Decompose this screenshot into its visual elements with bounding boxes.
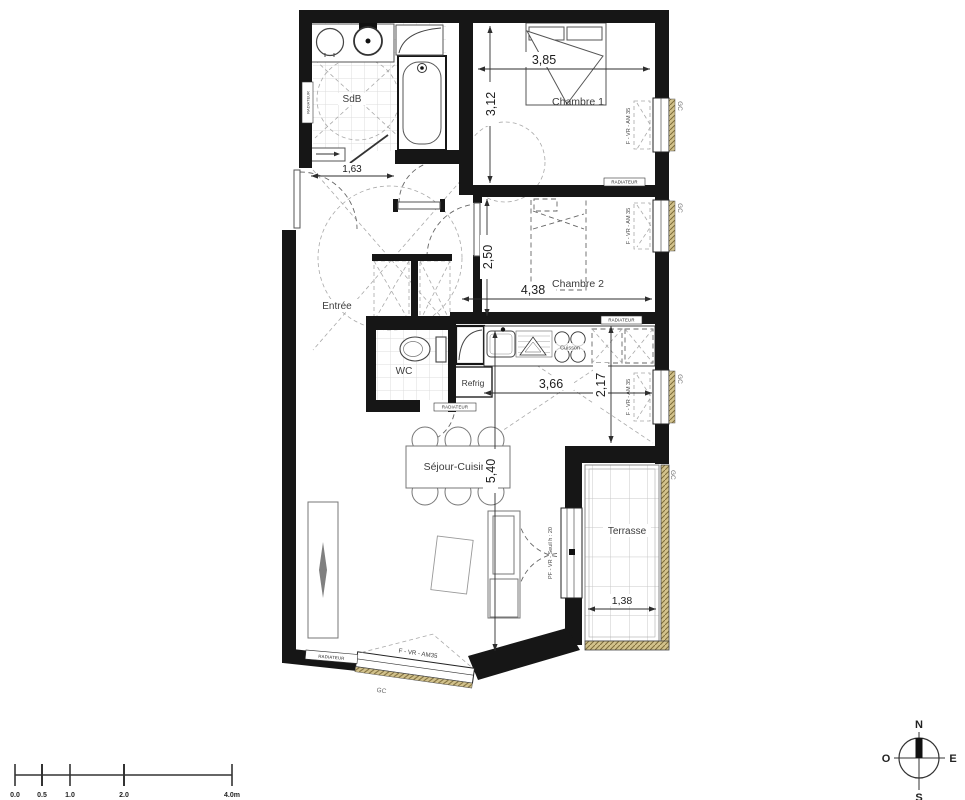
scale-tick-05: 0.5 xyxy=(37,792,47,799)
drainer-icon xyxy=(516,331,552,357)
floor-plan: Refrig Cuisson xyxy=(0,0,965,800)
sdb-label: SdB xyxy=(343,94,362,105)
svg-text:2,17: 2,17 xyxy=(594,373,608,397)
chambre2-label: Chambre 2 xyxy=(552,278,604,290)
rug-icon xyxy=(431,536,473,594)
sejour-label: Séjour-Cuisine xyxy=(424,461,493,473)
svg-text:2,50: 2,50 xyxy=(481,245,495,269)
radiator: RADIATEUR xyxy=(601,316,642,324)
window-label: F - VR - AM 35 xyxy=(626,208,632,244)
terrace-door-label: PF - VR - Seuil h : 20 xyxy=(548,527,554,579)
terrace-tiles xyxy=(585,465,659,641)
scale-bar: 0.0 0.5 1.0 2.0 4.0m xyxy=(10,764,240,799)
compass-west: O xyxy=(882,753,891,765)
gc-label: GC xyxy=(376,687,387,695)
sideboard-icon xyxy=(308,502,338,638)
dim-chambre1-width: 3,85 xyxy=(478,52,650,72)
toilet-icon xyxy=(400,337,446,362)
svg-text:1,63: 1,63 xyxy=(342,164,362,175)
chambre2-door-swing xyxy=(427,204,480,257)
gc-label: GC xyxy=(676,101,683,111)
dim-chambre1-height: 3,12 xyxy=(482,26,498,183)
svg-text:RADIATEUR: RADIATEUR xyxy=(608,318,634,323)
window-chambre1: F - VR - AM 35 GC xyxy=(626,98,683,152)
bed-dashed-icon xyxy=(531,196,586,290)
chambre1-label: Chambre 1 xyxy=(552,96,604,108)
chambre1-door-leaf xyxy=(398,202,440,209)
kitchen-counter-icon: Cuisson xyxy=(484,326,655,366)
radiator: RADIATEUR xyxy=(302,82,313,123)
compass-needle xyxy=(916,738,923,758)
svg-text:RADIATEUR: RADIATEUR xyxy=(611,180,637,185)
towel-radiator-icon xyxy=(311,148,345,161)
svg-text:4,38: 4,38 xyxy=(521,283,545,297)
svg-text:3,66: 3,66 xyxy=(539,377,563,391)
terrasse-label: Terrasse xyxy=(608,526,647,537)
pillow-icon xyxy=(567,27,602,40)
terrace-door-swing-top xyxy=(518,512,563,557)
scale-tick-0: 0.0 xyxy=(10,792,20,799)
svg-text:RADIATEUR: RADIATEUR xyxy=(442,405,468,410)
svg-text:5,40: 5,40 xyxy=(484,459,498,483)
stove-label: Cuisson xyxy=(560,346,580,352)
faucet-icon xyxy=(501,327,505,331)
dim-chambre2-height: 2,50 xyxy=(480,199,496,316)
compass-south: S xyxy=(915,792,922,800)
svg-text:RADIATEUR: RADIATEUR xyxy=(306,91,311,114)
terrace-french-door: PF - VR - Seuil h : 20 xyxy=(548,508,582,598)
kitchen-column-icon xyxy=(456,326,484,364)
entry-door-leaf xyxy=(294,170,300,228)
radiator: RADIATEUR xyxy=(604,178,645,186)
gc-label: GC xyxy=(669,470,676,480)
svg-text:3,85: 3,85 xyxy=(532,53,556,67)
radiator: RADIATEUR xyxy=(434,403,476,411)
window-cuisine: F - VR - AM 35 GC xyxy=(626,370,683,424)
gc-label: GC xyxy=(676,203,683,213)
compass: N S O E xyxy=(882,719,957,800)
svg-text:1,38: 1,38 xyxy=(612,595,633,607)
window-label: F - VR - AM 35 xyxy=(626,379,632,415)
bathtub-icon xyxy=(398,56,446,150)
gc-label: GC xyxy=(676,374,683,384)
entry-door-swing xyxy=(300,172,357,229)
compass-north: N xyxy=(915,719,923,731)
wc-label: WC xyxy=(396,366,413,377)
dim-sdb-width: 1,63 xyxy=(311,163,394,179)
window-sejour-bottom: F - VR - AM35 GC xyxy=(352,624,478,707)
corner-shelf-icon xyxy=(396,25,443,55)
chambre1-door-swing xyxy=(399,161,441,203)
chambre2-door-leaf xyxy=(474,203,480,256)
compass-east: E xyxy=(949,753,956,765)
sink-icon xyxy=(487,331,515,357)
terrace-railing-right xyxy=(661,465,669,648)
scale-tick-4: 4.0m xyxy=(224,792,240,799)
terrace-door-swing-bottom xyxy=(518,553,563,598)
entree-label: Entrée xyxy=(322,301,352,312)
svg-text:3,12: 3,12 xyxy=(484,92,498,116)
window-label: F - VR - AM 35 xyxy=(626,108,632,144)
terrace-railing-bottom xyxy=(585,641,669,650)
scale-tick-1: 1.0 xyxy=(65,792,75,799)
scale-tick-2: 2.0 xyxy=(119,792,129,799)
window-chambre2: F - VR - AM 35 GC xyxy=(626,200,683,252)
fridge-label: Refrig xyxy=(462,378,485,388)
door-leaves xyxy=(294,170,480,256)
sofa-icon xyxy=(488,511,520,618)
